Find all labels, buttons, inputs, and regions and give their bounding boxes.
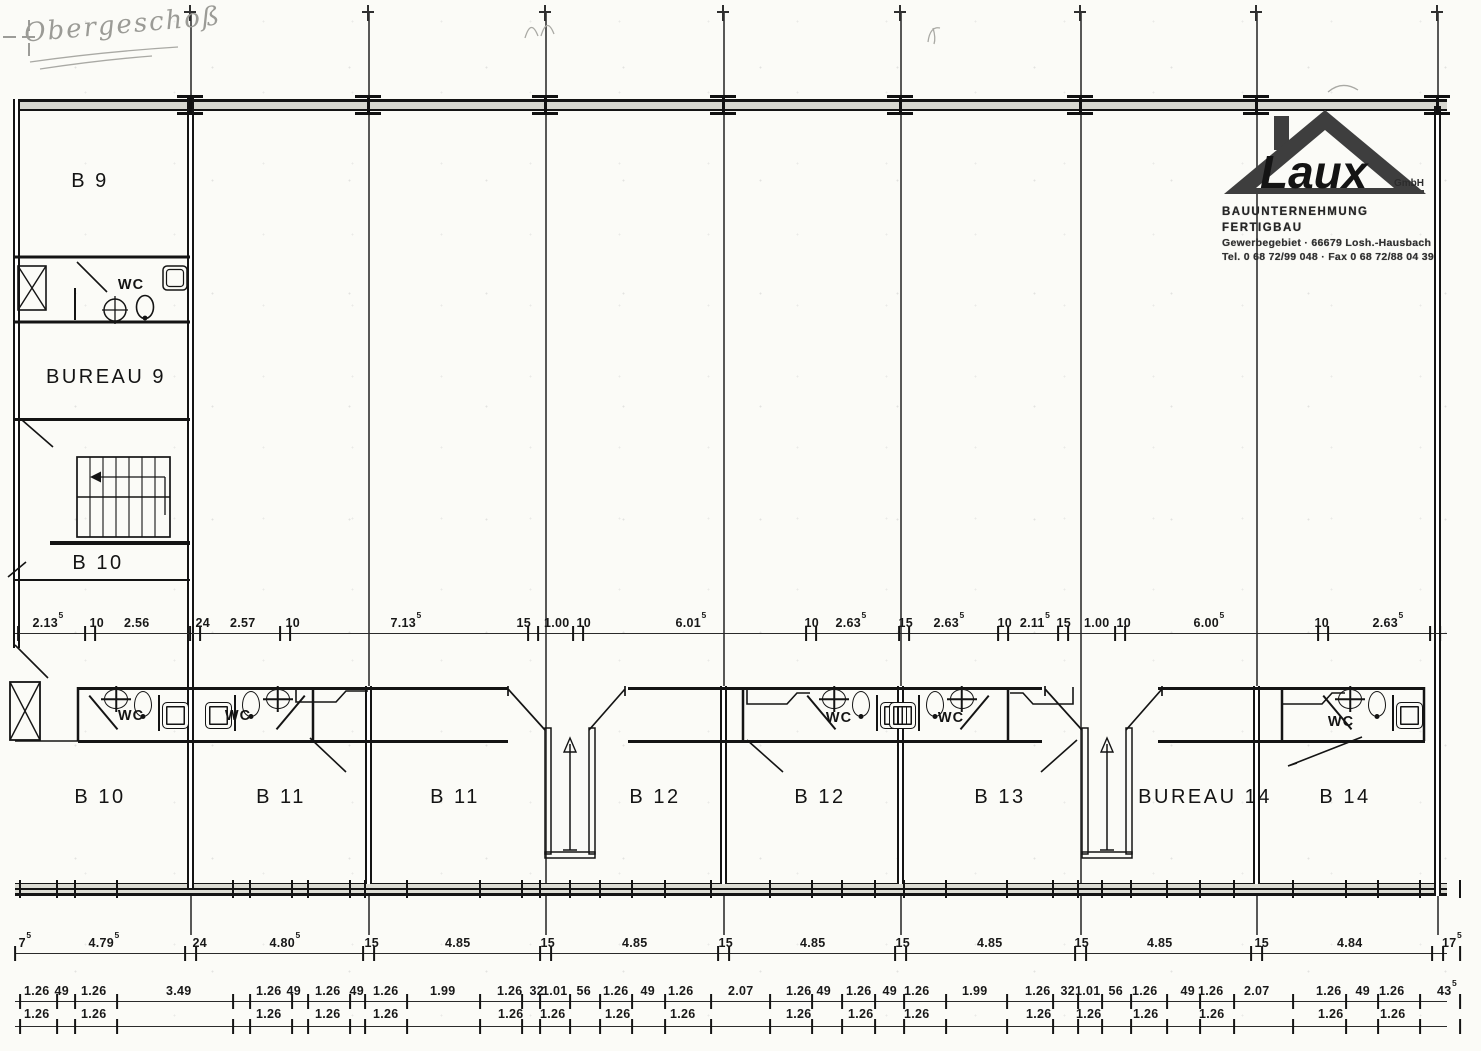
dimension-label: 4.85 (800, 934, 826, 950)
dimension-tick (307, 1019, 309, 1034)
dimension-label: 1.26 (81, 1005, 107, 1021)
dimension-label: 1.26 (1316, 982, 1342, 998)
wc-band-back-wall (78, 740, 508, 743)
dimension-tick (74, 1019, 76, 1034)
dimension-tick (189, 626, 191, 641)
dimension-tick (291, 1019, 293, 1034)
dimension-label: 10 (1314, 614, 1329, 630)
dimension-label: 15 (898, 614, 913, 630)
dimension-label: 15 (895, 934, 910, 950)
dimension-label: 6.015 (675, 614, 706, 630)
wc-room (800, 686, 912, 740)
dimension-tick (769, 994, 771, 1009)
dimension-tick (631, 1019, 633, 1034)
dimension-label: 1.01 (542, 982, 568, 998)
dimension-tick (769, 1019, 771, 1034)
partition-wall (897, 686, 904, 884)
dimension-label: 1.26 (904, 1005, 930, 1021)
dimension-tick (1052, 1019, 1054, 1034)
dimension-tick (1233, 1019, 1235, 1034)
vestibule-drawing (475, 684, 645, 868)
dimension-tick (710, 1019, 712, 1034)
dimension-label: 49 (816, 982, 831, 998)
dimension-label: 15 (1074, 934, 1089, 950)
room-label: B 11 (256, 786, 306, 809)
toilet-icon (242, 691, 260, 717)
dimension-label: 175 (1442, 934, 1462, 950)
room-label: B 10 (72, 552, 123, 575)
wc-room (200, 686, 312, 740)
dimension-label: 2.135 (32, 614, 63, 630)
dimension-label: 1.26 (497, 982, 523, 998)
dimension-label: 3.49 (166, 982, 192, 998)
dimension-tick (184, 946, 186, 961)
dimension-label: 10 (804, 614, 819, 630)
dimension-tick (84, 626, 86, 641)
dimension-tick (841, 1019, 843, 1034)
dimension-label: 4.85 (445, 934, 471, 950)
room-label: BUREAU 14 (1138, 786, 1272, 809)
dimension-tick (1101, 1019, 1103, 1034)
dimension-tick (1006, 1019, 1008, 1034)
dimension-tick (1006, 994, 1008, 1009)
toilet-icon (852, 691, 870, 717)
wc-band-front-wall (1158, 687, 1425, 690)
wc-band-back-wall (1158, 740, 1425, 743)
partition-stub (234, 695, 236, 731)
door-swing-icon (807, 695, 837, 730)
dimension-tick (19, 1019, 21, 1034)
shower-icon (1396, 702, 1423, 729)
dimension-label: 1.26 (605, 1005, 631, 1021)
dimension-tick (710, 994, 712, 1009)
dimension-tick (1429, 626, 1431, 641)
dimension-label: 49 (286, 982, 301, 998)
dimension-tick (406, 1019, 408, 1034)
dimension-tick (599, 1019, 601, 1034)
wc-label: WC (826, 710, 852, 726)
toilet-icon (926, 691, 944, 717)
dimension-tick (1345, 994, 1347, 1009)
dimension-tick (1233, 994, 1235, 1009)
dimension-tick (631, 994, 633, 1009)
dimension-label: 1.26 (846, 982, 872, 998)
dimension-label: 2.56 (124, 614, 150, 630)
dimension-label: 1.26 (848, 1005, 874, 1021)
dimension-label: 1.26 (24, 982, 50, 998)
dimension-tick (56, 1019, 58, 1034)
dimension-tick (14, 946, 16, 961)
window-mullion-tick (1459, 880, 1461, 898)
toilet-icon (134, 691, 152, 717)
wc-band-front-wall (78, 687, 508, 690)
dimension-label: 1.00 (544, 614, 570, 630)
dimension-tick (1166, 1019, 1168, 1034)
dimension-label: 1.99 (962, 982, 988, 998)
dimension-tick (539, 1019, 541, 1034)
vestibule-drawing (1012, 684, 1182, 868)
dimension-label: 4.795 (88, 934, 119, 950)
dimension-label: 1.26 (1132, 982, 1158, 998)
dimension-label: 10 (576, 614, 591, 630)
dimension-label: 1.26 (373, 982, 399, 998)
dimension-tick (1166, 994, 1168, 1009)
dimension-label: 10 (89, 614, 104, 630)
dimension-label: 56 (576, 982, 591, 998)
wc-room (82, 686, 194, 740)
dimension-label: 4.85 (1147, 934, 1173, 950)
logo-line3: Tel. 0 68 72/99 048 · Fax 0 68 72/88 04 … (1222, 250, 1440, 264)
dimension-label: 1.26 (1025, 982, 1051, 998)
axis-tick-icon (899, 5, 901, 21)
wc-label: WC (118, 708, 144, 724)
dimension-tick (1130, 1019, 1132, 1034)
dimension-label: 1.26 (498, 1005, 524, 1021)
dimension-tick (874, 994, 876, 1009)
wc-room (1316, 686, 1428, 740)
dimension-label: 1.99 (430, 982, 456, 998)
dimension-label: 2.07 (1244, 982, 1270, 998)
dimension-label: 1.26 (1026, 1005, 1052, 1021)
shower-icon (162, 702, 189, 729)
dimension-label: 56 (1108, 982, 1123, 998)
dimension-tick (569, 1019, 571, 1034)
dimension-tick (232, 994, 234, 1009)
dimension-tick (1345, 1019, 1347, 1034)
partition-wall (365, 686, 372, 884)
dimension-label: 1.26 (540, 1005, 566, 1021)
dimension-tick (945, 1019, 947, 1034)
dimension-tick (116, 994, 118, 1009)
dimension-label: 49 (1180, 982, 1195, 998)
dimension-tick (479, 1019, 481, 1034)
dimension-label: 1.26 (81, 982, 107, 998)
dimension-tick (1077, 1019, 1079, 1034)
dimension-label: 1.26 (1076, 1005, 1102, 1021)
dimension-label: 1.26 (1379, 982, 1405, 998)
axis-tick-icon (544, 5, 546, 21)
wc-label: WC (938, 710, 964, 726)
dimension-label: 1.01 (1075, 982, 1101, 998)
shaft-box (8, 680, 42, 744)
dimension-tick (811, 1019, 813, 1034)
dimension-tick (1459, 1019, 1461, 1034)
bottom-exterior-wall (15, 883, 1447, 896)
wc-band-back-wall (628, 740, 1042, 743)
shower-icon (205, 702, 232, 729)
dimension-label: 1.26 (603, 982, 629, 998)
dimension-label: 1.26 (670, 1005, 696, 1021)
wc-label: WC (1328, 714, 1354, 730)
dimension-tick (307, 994, 309, 1009)
dimension-label: 1.00 (1084, 614, 1110, 630)
door-swing-icon (276, 695, 306, 730)
dimension-label: 2.635 (933, 614, 964, 630)
door-swing-icon (1323, 695, 1353, 730)
dimension-label: 1.26 (1380, 1005, 1406, 1021)
dimension-tick (521, 1019, 523, 1034)
dimension-label: 15 (364, 934, 379, 950)
dimension-label: 1.26 (904, 982, 930, 998)
dimension-label: 10 (285, 614, 300, 630)
dimension-label: 1.26 (373, 1005, 399, 1021)
sink-icon (950, 689, 974, 709)
dimension-tick (1439, 626, 1441, 641)
dimension-tick (1292, 1019, 1294, 1034)
axis-tick-icon (722, 5, 724, 21)
sink-icon (266, 689, 290, 709)
dimension-tick (572, 626, 574, 641)
dimension-label: 4.85 (977, 934, 1003, 950)
dimension-tick (116, 1019, 118, 1034)
wc-label: WC (225, 708, 251, 724)
dimension-tick (249, 994, 251, 1009)
dimension-label: 4.84 (1337, 934, 1363, 950)
dimension-label: 2.635 (835, 614, 866, 630)
dimension-label: 4.805 (269, 934, 300, 950)
door-swing-icon (960, 695, 990, 730)
dimension-label: 75 (19, 934, 32, 950)
axis-tick-icon (1436, 5, 1438, 21)
dimension-tick (1419, 994, 1421, 1009)
dimension-label: 6.005 (1193, 614, 1224, 630)
dimension-label: 1.26 (1199, 1005, 1225, 1021)
partition-stub (1392, 695, 1394, 731)
dimension-label: 15 (540, 934, 555, 950)
dimension-label: 1.26 (315, 982, 341, 998)
dimension-tick (903, 1019, 905, 1034)
dimension-label: 15 (718, 934, 733, 950)
room-label: B 11 (430, 786, 480, 809)
company-logo: Laux GmbH BAUUNTERNEHMUNG FERTIGBAU Gewe… (1222, 106, 1440, 264)
logo-suffix: GmbH (1394, 178, 1424, 189)
dimension-tick (19, 994, 21, 1009)
dimension-label: 1.26 (24, 1005, 50, 1021)
dimension-label: 15 (1056, 614, 1071, 630)
partition-stub (876, 695, 878, 731)
entrance-vestibule (1012, 684, 1182, 868)
dimension-tick (569, 994, 571, 1009)
logo-line1: BAUUNTERNEHMUNG FERTIGBAU (1222, 205, 1440, 236)
handwritten-note: Obergeschoß (23, 1, 222, 48)
entrance-vestibule (475, 684, 645, 868)
room-label: B 12 (629, 786, 680, 809)
dimension-tick (1199, 1019, 1201, 1034)
left-exterior-wall (13, 99, 20, 648)
dimension-tick (664, 1019, 666, 1034)
dimension-label: 2.57 (230, 614, 256, 630)
dimension-label: 1.26 (668, 982, 694, 998)
room-label: B 14 (1319, 786, 1370, 809)
dimension-tick (17, 626, 19, 641)
axis-tick-icon (367, 5, 369, 21)
dimension-tick (249, 1019, 251, 1034)
room-label: B 13 (974, 786, 1025, 809)
axis-tick-icon (1079, 5, 1081, 21)
logo-roof-icon: Laux GmbH (1222, 106, 1432, 198)
dimension-label: 2.07 (728, 982, 754, 998)
sink-icon (104, 689, 128, 709)
stair-hall-wall (15, 418, 190, 421)
room-label: B 10 (74, 786, 125, 809)
dimension-label: 4.85 (622, 934, 648, 950)
dimension-label: 1.26 (786, 982, 812, 998)
dimension-tick (1052, 994, 1054, 1009)
dimension-tick (841, 994, 843, 1009)
toilet-icon (1368, 691, 1386, 717)
dimension-tick (479, 994, 481, 1009)
dimension-label: 1.26 (786, 1005, 812, 1021)
staircase (40, 425, 190, 550)
grid-line (1080, 12, 1082, 935)
room-label: B 12 (794, 786, 845, 809)
dimension-label: 32 (1060, 982, 1075, 998)
dimension-label: 24 (192, 934, 207, 950)
dimension-label: 7.135 (390, 614, 421, 630)
dimension-line (15, 953, 1447, 954)
dimension-label: 1.26 (315, 1005, 341, 1021)
dimension-tick (664, 994, 666, 1009)
dimension-label: 1.26 (256, 1005, 282, 1021)
dimension-tick (599, 994, 601, 1009)
dimension-tick (232, 1019, 234, 1034)
dimension-tick (1250, 946, 1252, 961)
dimension-tick (1419, 1019, 1421, 1034)
dimension-tick (74, 994, 76, 1009)
dimension-tick (537, 626, 539, 641)
partition-stub (158, 695, 160, 731)
dimension-label: 2.115 (1020, 614, 1050, 630)
dimension-label: 1.26 (1318, 1005, 1344, 1021)
room-label: BUREAU 9 (46, 366, 166, 389)
room-label: B 9 (71, 170, 109, 193)
dimension-tick (1292, 994, 1294, 1009)
dimension-tick (406, 994, 408, 1009)
corridor-wall (15, 579, 190, 581)
door-swing-icon (89, 695, 119, 730)
logo-brand: Laux (1260, 146, 1370, 198)
dimension-tick (1431, 946, 1433, 961)
axis-tick-icon (1255, 5, 1257, 21)
dimension-label: 1.26 (1198, 982, 1224, 998)
wc-room-upper-left (15, 254, 193, 326)
dimension-tick (364, 1019, 366, 1034)
dimension-label: 1.26 (1133, 1005, 1159, 1021)
dimension-tick (1377, 1019, 1379, 1034)
dimension-label: 10 (1116, 614, 1131, 630)
dimension-label: 2.635 (1372, 614, 1403, 630)
sink-icon (1338, 689, 1362, 709)
dimension-label: 49 (1355, 982, 1370, 998)
dimension-label: 49 (349, 982, 364, 998)
dimension-tick (1459, 994, 1461, 1009)
dimension-label: 49 (54, 982, 69, 998)
grid-line (545, 12, 547, 935)
dimension-label: 24 (195, 614, 210, 630)
dimension-label: 15 (516, 614, 531, 630)
dimension-label: 49 (882, 982, 897, 998)
dimension-label: 10 (997, 614, 1012, 630)
sink-icon (822, 689, 846, 709)
partition-wall (720, 686, 727, 884)
dimension-label: 435 (1437, 982, 1457, 998)
dimension-line (15, 633, 1447, 634)
dimension-tick (874, 1019, 876, 1034)
logo-line2: Gewerbegebiet · 66679 Losh.-Hausbach (1222, 236, 1440, 250)
wc-band-front-wall (628, 687, 1042, 690)
dimension-label: 49 (640, 982, 655, 998)
floor-plan-sheet: 2.135102.56242.57107.135151.00106.015102… (0, 0, 1481, 1051)
partition-wall (1253, 686, 1260, 884)
dimension-label: 1.26 (256, 982, 282, 998)
dimension-tick (945, 994, 947, 1009)
dimension-tick (279, 626, 281, 641)
dimension-label: 15 (1254, 934, 1269, 950)
dimension-tick (349, 1019, 351, 1034)
partition-stub (918, 695, 920, 731)
